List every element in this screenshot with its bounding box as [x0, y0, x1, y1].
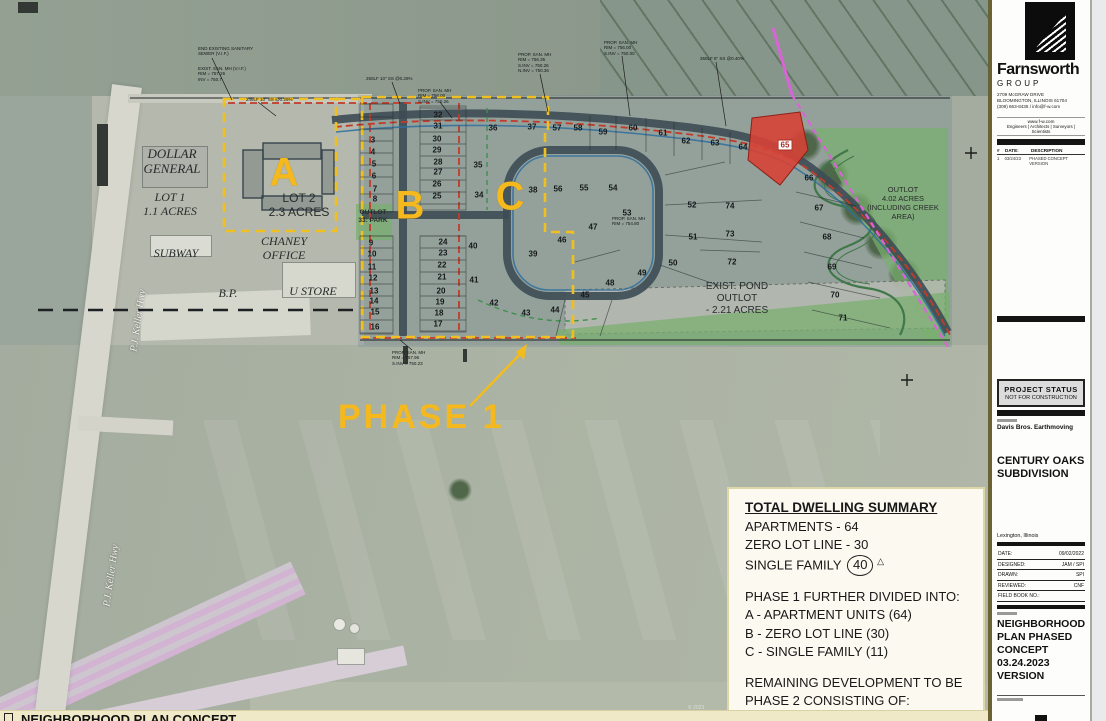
- lot-number: 35: [474, 161, 483, 170]
- lot-number: 18: [435, 309, 444, 318]
- callout-line: S.INV = 750.23: [392, 361, 425, 366]
- lot-number: 56: [554, 185, 563, 194]
- info-row: REVIEWED:CNF: [997, 581, 1085, 592]
- lot-number: 51: [689, 233, 698, 242]
- lot-number: 48: [606, 279, 615, 288]
- lot-number: 70: [831, 291, 840, 300]
- rev-desc-header: DESCRIPTION: [1031, 148, 1062, 153]
- area-label-line: B.P.: [218, 286, 237, 300]
- area-label-line: LOT 1: [143, 190, 197, 204]
- lot-number: 29: [433, 146, 442, 155]
- callout-line: 246LF 10" SS @0.28%: [246, 97, 292, 102]
- farnsworth-logo-icon: [1025, 2, 1075, 60]
- phase1-label: PHASE 1: [338, 398, 505, 437]
- lot-number: 44: [551, 306, 560, 315]
- area-label-line: AREA): [867, 213, 939, 222]
- lot-number: 10: [368, 250, 377, 259]
- area-label-line: SUBWAY: [154, 246, 199, 260]
- phase1-item: C - SINGLE FAMILY (11): [745, 643, 983, 661]
- lot-number: 15: [371, 308, 380, 317]
- lot-number: 66: [805, 174, 814, 183]
- lot-number: 32: [434, 111, 443, 120]
- lot-number: 64: [739, 143, 748, 152]
- sheet-footer: NEIGHBORHOOD PLAN CONCEPT: [0, 710, 988, 721]
- info-value: CNF: [1074, 583, 1084, 589]
- lot-number: 60: [629, 124, 638, 133]
- summary-title: TOTAL DWELLING SUMMARY: [745, 500, 983, 515]
- revision-cloud: 40: [847, 555, 873, 575]
- phase1-item: B - ZERO LOT LINE (30): [745, 625, 983, 643]
- callout-line: S.INV = 750.26: [418, 99, 451, 104]
- lot-number: 6: [372, 172, 376, 181]
- utility-callout: PROP. SAN. MHRIM = 757.96S.INV = 750.23: [392, 350, 425, 366]
- area-label-line: OFFICE: [261, 248, 307, 262]
- firm-group: GROUP: [997, 79, 1085, 88]
- summary-lines: APARTMENTS - 64ZERO LOT LINE - 30: [745, 518, 983, 555]
- footer-box-icon: [4, 713, 13, 721]
- utility-callout: PROP. SAN. MHRIM = 756.35S.INV = 750.26N…: [518, 52, 551, 74]
- project-name: CENTURY OAKS SUBDIVISION: [997, 455, 1085, 481]
- phase2-header-line: PHASE 2 CONSISTING OF:: [745, 692, 983, 710]
- info-row: DATE:09/02/2022: [997, 549, 1085, 560]
- lot-number: 50: [669, 259, 678, 268]
- lot-number: 69: [828, 263, 837, 272]
- revision-cell: 03/24/23: [1005, 156, 1030, 166]
- lot-number: 11: [368, 263, 376, 272]
- lot-number: 43: [522, 309, 531, 318]
- title-block: Farnsworth GROUP 2709 McGRAW DRIVEBLOOMI…: [988, 0, 1090, 721]
- lot-number: 54: [609, 184, 618, 193]
- single-family-prefix: SINGLE FAMILY: [745, 557, 841, 572]
- area-label-line: 33: PARK: [358, 217, 387, 225]
- lot-number: 47: [589, 223, 598, 232]
- lot-number: 17: [434, 320, 443, 329]
- forcemain-line: [773, 28, 792, 95]
- utility-callout: EXIST. SAN. MH (V.I.F.)RIM = 757.26INV =…: [198, 66, 246, 82]
- divider-bar: [997, 410, 1085, 416]
- utility-callout: 250LF 10" SS @0.28%: [366, 76, 412, 81]
- divider-line: [997, 695, 1085, 696]
- area-label-line: - 2.21 ACRES: [706, 305, 768, 317]
- lot-number: 52: [688, 201, 697, 210]
- zone-letter-a: A: [270, 151, 299, 196]
- callout-line: S.INV = 750.00: [604, 51, 637, 56]
- lot-number: 7: [373, 185, 377, 194]
- lot-number: 9: [369, 239, 373, 248]
- project-status-box: PROJECT STATUS NOT FOR CONSTRUCTION: [997, 379, 1085, 407]
- utility-callout: 350LF 8" SS @0.40%: [700, 56, 744, 61]
- revision-cell: PHASED CONCEPT VERSION: [1029, 156, 1085, 166]
- client-micro-label: [997, 419, 1017, 422]
- callout-line: RIM = 754.80: [612, 221, 645, 226]
- info-row: DRAWN:SPI: [997, 570, 1085, 581]
- info-value: JAM / SPI: [1062, 562, 1084, 568]
- info-row: DESIGNED:JAM / SPI: [997, 560, 1085, 571]
- lot-number: 71: [839, 314, 848, 323]
- lot-number: 58: [574, 124, 583, 133]
- phase1-arrow: [470, 344, 527, 406]
- lot-number: 62: [682, 137, 691, 146]
- area-label: CHANEYOFFICE: [261, 234, 307, 262]
- lot-number: 30: [433, 135, 442, 144]
- info-row: FIELD BOOK NO.:: [997, 591, 1085, 602]
- rev-date-header: DATE:: [1005, 148, 1031, 153]
- area-label-line: GENERAL: [143, 161, 200, 176]
- info-label: DESIGNED:: [998, 562, 1026, 568]
- lot-number: 61: [659, 129, 668, 138]
- area-label-line: U STORE: [289, 284, 336, 298]
- lot-number: 74: [726, 202, 735, 211]
- phase1-items: A - APARTMENT UNITS (64)B - ZERO LOT LIN…: [745, 606, 983, 661]
- info-value: 09/02/2022: [1059, 551, 1084, 557]
- lot-number: 13: [370, 287, 379, 296]
- info-value: SPI: [1076, 572, 1084, 578]
- lot-number: 42: [490, 299, 499, 308]
- firm-address-line: (309) 663-8435 / info@f-w.com: [997, 104, 1085, 110]
- phase1-header: PHASE 1 FURTHER DIVIDED INTO:: [745, 588, 983, 606]
- single-family-line: SINGLE FAMILY 40 △: [745, 555, 983, 576]
- lot-number: 41: [470, 276, 479, 285]
- lot-number: 27: [434, 168, 443, 177]
- callout-line: SEWER (V.I.F.): [198, 51, 253, 56]
- revision-rows: 103/24/23PHASED CONCEPT VERSION: [997, 155, 1085, 166]
- callout-line: N.INV = 750.36: [518, 68, 551, 73]
- lot-number: 24: [439, 238, 448, 247]
- lot-number: 57: [553, 124, 562, 133]
- callout-line: 250LF 10" SS @0.28%: [366, 76, 412, 81]
- lot-number: 34: [475, 191, 484, 200]
- lot-number: 39: [529, 250, 538, 259]
- lot-number: 20: [437, 287, 446, 296]
- sheet-number-mark: [1035, 715, 1047, 721]
- lot-number: 14: [370, 297, 379, 306]
- lot-number: 68: [823, 233, 832, 242]
- revision-row: 103/24/23PHASED CONCEPT VERSION: [997, 155, 1085, 166]
- footer-label: NEIGHBORHOOD PLAN CONCEPT: [21, 712, 236, 721]
- zone-letter-c: C: [496, 175, 525, 220]
- firm-name: Farnsworth: [997, 62, 1085, 78]
- info-label: DRAWN:: [998, 572, 1018, 578]
- area-label: OUTLOT4.02 ACRES(INCLUDING CREEKAREA): [867, 186, 939, 221]
- lot-number: 26: [433, 180, 442, 189]
- lot-number: 59: [599, 128, 608, 137]
- project-location: Lexington, Illinois: [997, 533, 1085, 539]
- lot-number: 16: [371, 323, 380, 332]
- lot-number: 23: [439, 249, 448, 258]
- lot-number: 63: [711, 139, 720, 148]
- dwelling-summary-box: TOTAL DWELLING SUMMARY APARTMENTS - 64ZE…: [727, 487, 985, 721]
- area-label-line: OUTLOT: [706, 293, 768, 305]
- sheet-info-rows: DATE:09/02/2022DESIGNED:JAM / SPIDRAWN:S…: [997, 549, 1085, 602]
- utility-callout: END EXISTING SANITARYSEWER (V.I.F.): [198, 46, 253, 57]
- lot-number: 12: [369, 274, 378, 283]
- area-label: SUBWAY: [154, 246, 199, 260]
- firm-disciplines: Engineers | Architects | Surveyors | Sci…: [997, 124, 1085, 136]
- area-label-line: DOLLAR: [143, 146, 200, 161]
- area-label-line: OUTLOT: [358, 209, 387, 217]
- callout-line: INV = 750.7: [198, 77, 246, 82]
- lot-number: 37: [528, 123, 537, 132]
- area-label: B.P.: [218, 286, 237, 300]
- lot-number: 55: [580, 184, 589, 193]
- lot-number: 5: [372, 160, 376, 169]
- client-name: Davis Bros. Earthmoving: [997, 424, 1085, 431]
- divider-bar: [997, 605, 1085, 609]
- divider-bar: [997, 316, 1085, 322]
- lot-number: 8: [373, 195, 377, 204]
- phase1-item: A - APARTMENT UNITS (64): [745, 606, 983, 624]
- phase2-header-line: REMAINING DEVELOPMENT TO BE: [745, 674, 983, 692]
- lot-number: 22: [438, 261, 447, 270]
- area-label: EXIST. PONDOUTLOT- 2.21 ACRES: [706, 281, 768, 316]
- lot-number: 21: [438, 273, 447, 282]
- lot-number: 67: [815, 204, 824, 213]
- area-label-line: CHANEY: [261, 234, 307, 248]
- utility-callout: PROP. SAN. MHRIM = 756.00S.INV = 750.00: [604, 40, 637, 56]
- area-label: LOT 11.1 ACRES: [143, 190, 197, 218]
- area-label-line: 2.3 ACRES: [269, 205, 330, 219]
- lot-number: 45: [581, 291, 590, 300]
- lot-number: 38: [529, 186, 538, 195]
- lot-number: 40: [469, 242, 478, 251]
- area-label-line: EXIST. POND: [706, 281, 768, 293]
- area-label: OUTLOT33: PARK: [358, 209, 387, 224]
- lot-number: 72: [728, 258, 737, 267]
- area-label-line: 1.1 ACRES: [143, 204, 197, 218]
- divider-bar: [997, 542, 1085, 546]
- lot-number: 25: [433, 192, 442, 201]
- rev-num-header: #: [997, 148, 1005, 153]
- summary-line: APARTMENTS - 64: [745, 518, 983, 536]
- area-label: U STORE: [289, 284, 336, 298]
- firm-website: www.f-w.com: [997, 117, 1085, 124]
- info-label: REVIEWED:: [998, 583, 1026, 589]
- lot-number: 31: [434, 122, 443, 131]
- plan-sheet: DOLLARGENERALLOT 11.1 ACRESSUBWAYCHANEYO…: [0, 0, 1092, 721]
- sheet-number-micro-label: [997, 698, 1023, 701]
- revision-header: # DATE: DESCRIPTION: [997, 148, 1085, 155]
- lot-number: 4: [371, 148, 375, 157]
- lot-number: 36: [489, 124, 498, 133]
- lot-number: 49: [638, 269, 647, 278]
- utility-callout: PROP. SAN. MHRIM = 754.80: [612, 216, 645, 227]
- lot-number: 19: [436, 298, 445, 307]
- lot-number: 65: [778, 140, 793, 151]
- utility-callout: 246LF 10" SS @0.28%: [246, 97, 292, 102]
- area-label: DOLLARGENERAL: [143, 146, 200, 177]
- phase2-header: REMAINING DEVELOPMENT TO BEPHASE 2 CONSI…: [745, 674, 983, 711]
- revision-cell: 1: [997, 156, 1005, 166]
- lot-number: 73: [726, 230, 735, 239]
- lot-number: 3: [371, 136, 375, 145]
- lot-number: 28: [434, 158, 443, 167]
- firm-address: 2709 McGRAW DRIVEBLOOMINGTON, ILLINOIS 6…: [997, 92, 1085, 111]
- zone-letter-b: B: [396, 184, 425, 229]
- status-line2: NOT FOR CONSTRUCTION: [1000, 395, 1082, 401]
- lot-number: 46: [558, 236, 567, 245]
- callout-line: 350LF 8" SS @0.40%: [700, 56, 744, 61]
- info-label: DATE:: [998, 551, 1012, 557]
- sheet-title: NEIGHBORHOOD PLAN PHASED CONCEPT 03.24.2…: [997, 618, 1085, 684]
- revision-delta-icon: △: [877, 556, 884, 566]
- status-line1: PROJECT STATUS: [1000, 385, 1082, 394]
- utility-callout: PROP. SAN. MHRIM = 758.00S.INV = 750.26: [418, 88, 451, 104]
- info-label: FIELD BOOK NO.:: [998, 593, 1040, 599]
- title-micro-label: [997, 612, 1017, 615]
- divider-bar: [997, 139, 1085, 145]
- summary-line: ZERO LOT LINE - 30: [745, 536, 983, 554]
